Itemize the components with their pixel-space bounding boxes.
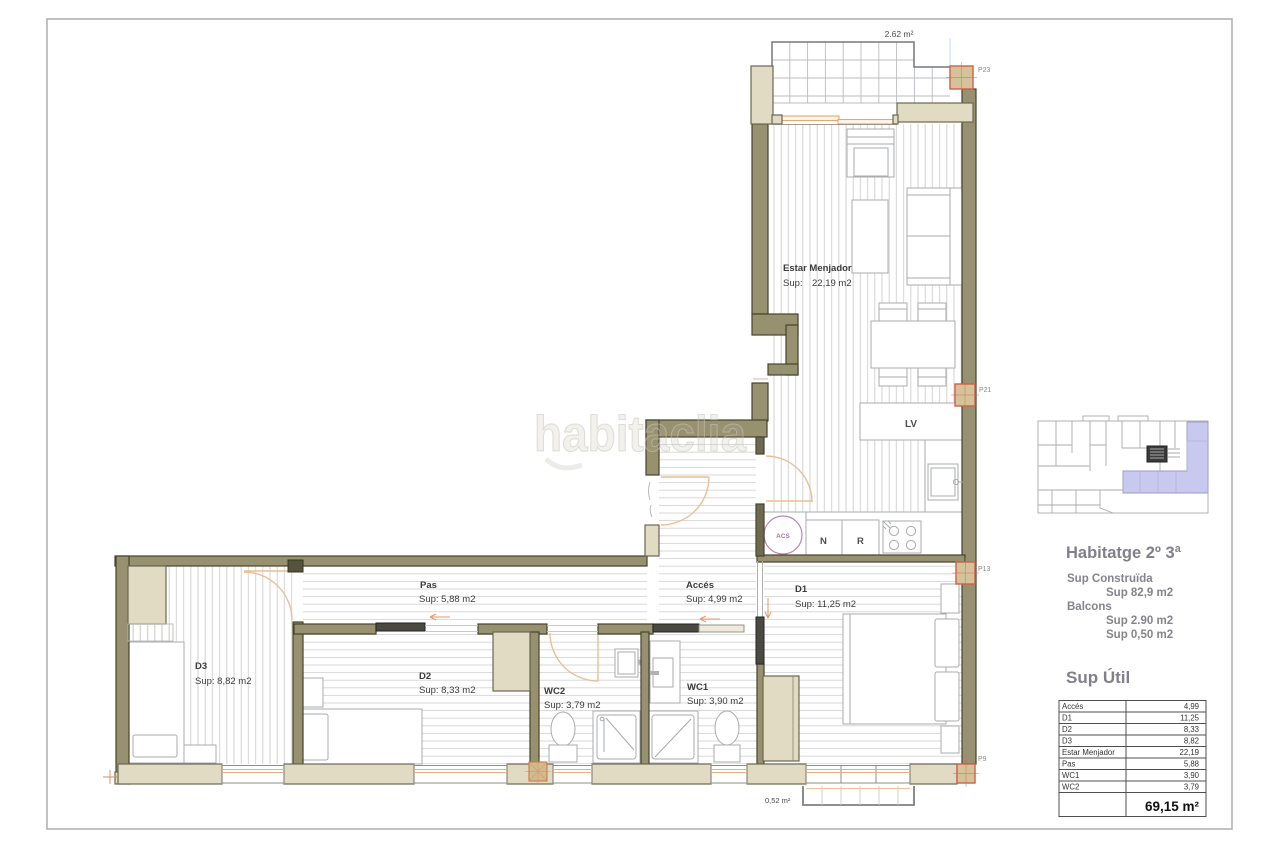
svg-text:0,52 m²: 0,52 m²	[765, 796, 791, 805]
svg-text:Accés: Accés	[686, 580, 714, 591]
svg-text:Estar Menjador: Estar Menjador	[783, 263, 852, 274]
svg-text:3,79: 3,79	[1184, 783, 1199, 792]
svg-text:Sup:: Sup:	[783, 278, 803, 289]
svg-text:habitaclia: habitaclia	[534, 406, 747, 462]
svg-text:D2: D2	[1062, 725, 1072, 734]
svg-text:ACS: ACS	[776, 533, 790, 540]
svg-text:P21: P21	[979, 387, 992, 394]
svg-text:WC1: WC1	[1062, 771, 1079, 780]
svg-text:Pas: Pas	[420, 580, 437, 591]
svg-text:N: N	[820, 536, 827, 547]
svg-text:Sup 2.90 m2: Sup 2.90 m2	[1106, 615, 1173, 627]
svg-text:4,99: 4,99	[1184, 702, 1199, 711]
svg-text:P13: P13	[978, 566, 991, 573]
svg-text:Estar Menjador: Estar Menjador	[1062, 748, 1115, 757]
svg-text:Sup: 5,88 m2: Sup: 5,88 m2	[419, 594, 476, 605]
svg-text:WC1: WC1	[687, 682, 709, 693]
svg-text:D3: D3	[1062, 737, 1072, 746]
svg-text:Sup: 11,25 m2: Sup: 11,25 m2	[795, 599, 856, 610]
svg-text:P23: P23	[978, 67, 991, 74]
svg-text:LV: LV	[905, 419, 917, 430]
svg-text:Sup: 8,82 m2: Sup: 8,82 m2	[195, 676, 252, 687]
svg-text:11,25: 11,25	[1180, 714, 1200, 723]
svg-text:Sup 0,50 m2: Sup 0,50 m2	[1106, 629, 1173, 641]
svg-text:Sup 82,9 m2: Sup 82,9 m2	[1106, 587, 1173, 599]
svg-text:8,33: 8,33	[1184, 725, 1199, 734]
svg-text:Habitatge 2º 3ª: Habitatge 2º 3ª	[1066, 544, 1182, 562]
svg-text:D3: D3	[195, 661, 207, 672]
svg-text:Sup: 3,90 m2: Sup: 3,90 m2	[687, 696, 744, 707]
svg-text:WC2: WC2	[544, 686, 565, 697]
svg-text:8,82: 8,82	[1184, 737, 1199, 746]
svg-text:5,88: 5,88	[1184, 760, 1199, 769]
svg-text:Accés: Accés	[1062, 702, 1083, 711]
svg-text:D1: D1	[795, 584, 808, 595]
svg-text:Pas: Pas	[1062, 760, 1076, 769]
svg-text:Sup: 4,99 m2: Sup: 4,99 m2	[686, 594, 743, 605]
svg-text:2.62 m²: 2.62 m²	[885, 29, 914, 39]
svg-text:22,19 m2: 22,19 m2	[812, 278, 852, 289]
svg-text:D1: D1	[1062, 714, 1072, 723]
svg-text:Sup: 3,79 m2: Sup: 3,79 m2	[544, 700, 601, 711]
svg-text:P9: P9	[978, 756, 987, 763]
svg-text:Sup Útil: Sup Útil	[1066, 668, 1130, 687]
svg-text:Balcons: Balcons	[1067, 601, 1112, 613]
svg-text:Sup: 8,33 m2: Sup: 8,33 m2	[419, 685, 476, 696]
svg-text:WC2: WC2	[1062, 783, 1079, 792]
svg-text:3,90: 3,90	[1184, 771, 1200, 780]
svg-text:R: R	[857, 536, 864, 547]
svg-text:69,15 m²: 69,15 m²	[1145, 799, 1200, 814]
svg-text:D2: D2	[419, 671, 431, 682]
svg-text:Sup Construïda: Sup Construïda	[1067, 573, 1153, 585]
svg-text:22,19: 22,19	[1179, 748, 1199, 757]
